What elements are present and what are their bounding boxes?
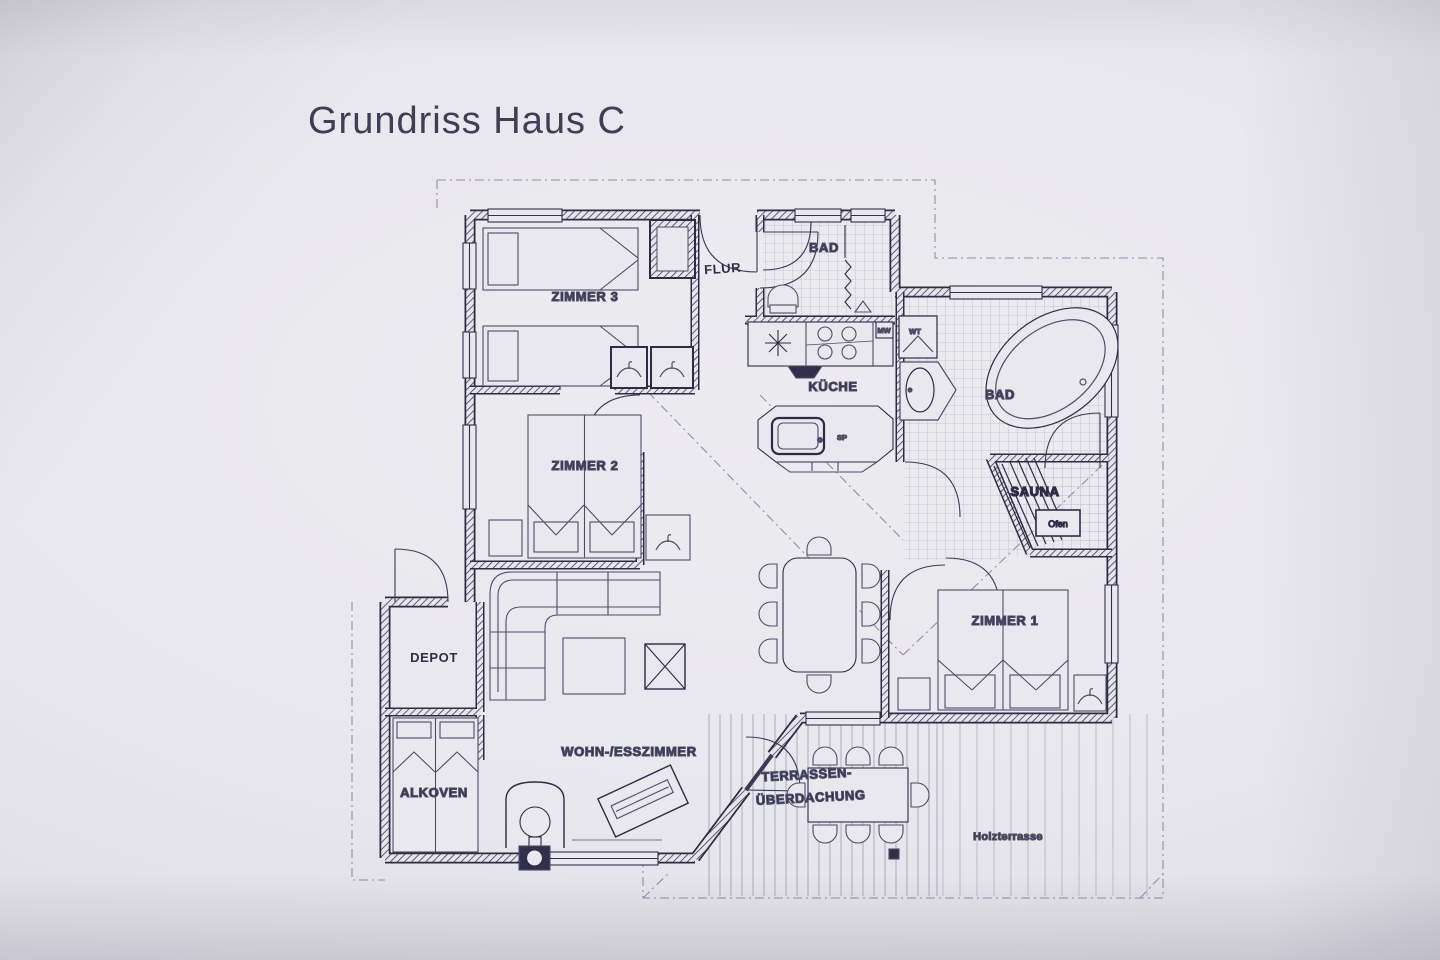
terrace-window — [806, 712, 880, 725]
flur-label: FLUR — [704, 260, 742, 278]
tv-sideboard — [598, 765, 688, 837]
kueche-label: KÜCHE — [808, 379, 857, 394]
zimmer1-door-arc-left — [890, 565, 945, 620]
window — [463, 425, 476, 509]
zimmer1-label: ZIMMER 1 — [972, 613, 1039, 628]
wood-terrace-deck — [937, 714, 1159, 896]
oven-front — [788, 366, 822, 378]
microwave-label: MW — [877, 326, 891, 335]
wc — [768, 285, 798, 307]
room-depot: DEPOT — [410, 650, 458, 665]
holzterrasse-label: Holzterrasse — [973, 831, 1043, 843]
zimmer2-label: ZIMMER 2 — [552, 458, 619, 473]
room-zimmer1: ZIMMER 1 — [898, 590, 1106, 711]
sauna-label: SAUNA — [1010, 484, 1059, 499]
bad-top-label: BAD — [809, 240, 839, 255]
room-zimmer3: ZIMMER 3 — [483, 220, 695, 388]
photographed-floor-plan: Grundriss Haus C — [0, 0, 1440, 960]
depot-door-arc — [395, 549, 448, 602]
terrace-post — [889, 849, 899, 859]
window — [463, 243, 476, 289]
nightstand — [489, 520, 522, 556]
room-zimmer2: ZIMMER 2 — [489, 415, 690, 560]
ofen-label: Ofen — [1048, 519, 1068, 529]
dishwasher-label: SP — [837, 433, 847, 442]
nightstand — [898, 678, 930, 710]
window — [488, 209, 562, 222]
window — [1105, 585, 1118, 663]
window — [548, 852, 658, 865]
room-alkoven: ALKOVEN — [393, 718, 478, 852]
window — [463, 332, 476, 378]
dining-table-set — [759, 537, 880, 693]
coffee-table — [563, 638, 625, 694]
single-bed — [483, 228, 638, 290]
wohnzimmer-label: WOHN-/ESSZIMMER — [561, 744, 696, 759]
floor-plan-drawing: ZIMMER 3 FLUR BAD — [0, 0, 1440, 960]
bad-right-label: BAD — [985, 387, 1015, 402]
washbasin-label: WT — [909, 327, 921, 336]
side-table — [645, 644, 685, 689]
zimmer3-label: ZIMMER 3 — [552, 289, 619, 304]
window — [950, 286, 1042, 299]
alkoven-label: ALKOVEN — [400, 785, 468, 800]
room-kueche: MW SP KÜCHE — [748, 322, 893, 472]
washbasin-cabinet — [899, 316, 937, 358]
depot-label: DEPOT — [410, 650, 458, 665]
window — [851, 209, 885, 222]
dining-table — [783, 558, 856, 672]
window — [795, 209, 841, 222]
